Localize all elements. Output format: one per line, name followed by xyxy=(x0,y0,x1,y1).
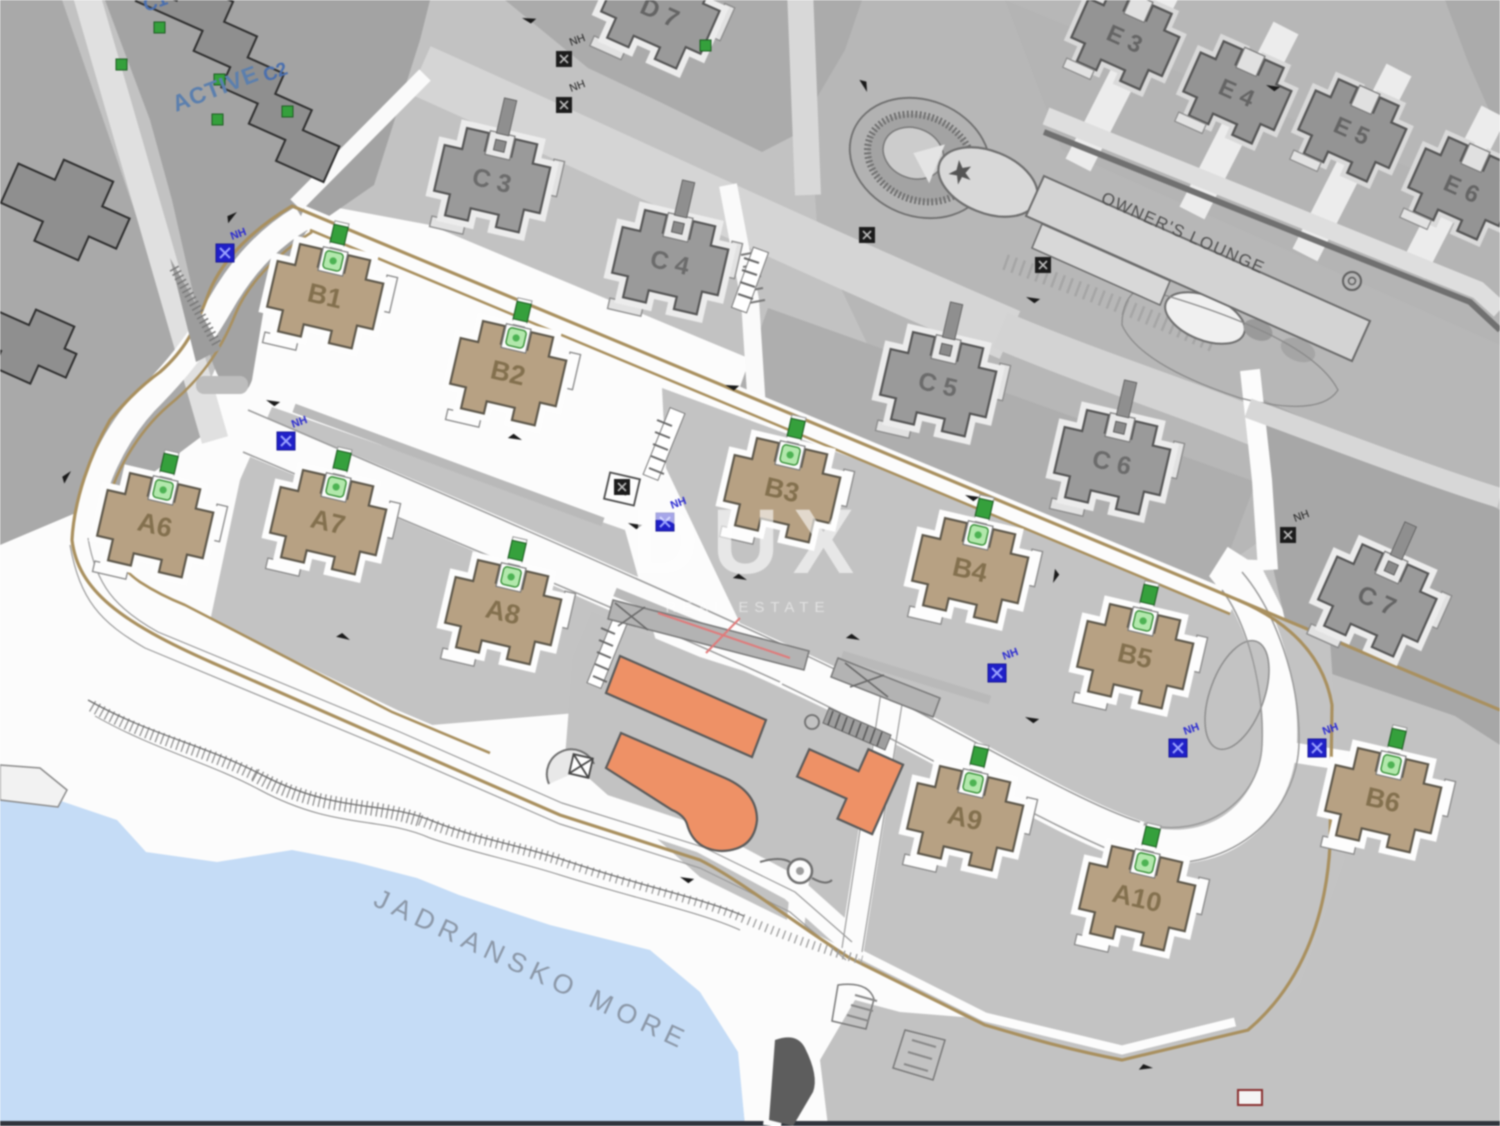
svg-text:REAL ESTATE: REAL ESTATE xyxy=(666,599,831,616)
svg-text:DUX: DUX xyxy=(632,491,868,593)
